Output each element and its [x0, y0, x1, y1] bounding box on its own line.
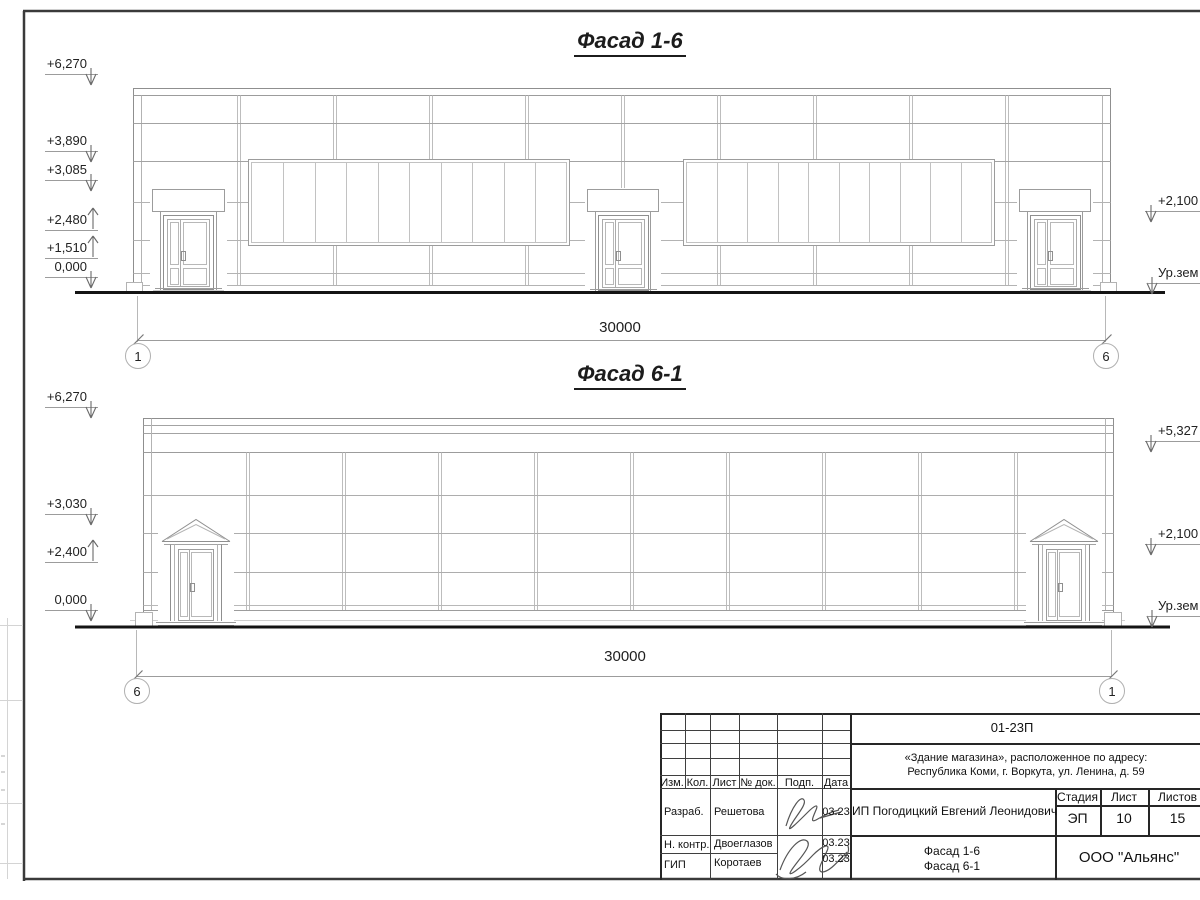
- date-razrab: 03.23: [821, 806, 851, 819]
- facade1-entrance-middle: [585, 188, 661, 292]
- company-name: ООО "Альянс": [1058, 851, 1200, 864]
- role-razrab: Разраб.: [664, 806, 704, 819]
- elevation-mark: +2,400: [19, 544, 87, 559]
- col-header-doc: № док.: [738, 777, 778, 790]
- role-gip: ГИП: [664, 859, 686, 872]
- drawing-name-line2: Фасад 6-1: [852, 860, 1052, 873]
- drawing-name-line1: Фасад 1-6: [852, 845, 1052, 858]
- elevation-mark: +3,085: [19, 162, 87, 177]
- facade1-entrance-left: [150, 188, 227, 292]
- elevation-mark: +2,480: [19, 212, 87, 227]
- project-address-line1: «Здание магазина», расположенное по адре…: [850, 752, 1200, 765]
- elevation-mark: +1,510: [19, 240, 87, 255]
- elevation-mark: +3,890: [19, 133, 87, 148]
- facade2-title: Фасад 6-1: [430, 361, 830, 390]
- client-name: ИП Погодицкий Евгений Леонидович: [852, 805, 1052, 818]
- date-nkontr: 03.23: [821, 837, 851, 850]
- elevation-mark: +2,100: [1158, 526, 1200, 541]
- col-header-list: Лист: [709, 777, 740, 790]
- elevation-mark: +3,030: [19, 496, 87, 511]
- elevation-mark: +6,270: [19, 389, 87, 404]
- axis-circle-1: 1: [1099, 678, 1125, 704]
- project-address-line2: Республика Коми, г. Воркута, ул. Ленина,…: [850, 766, 1200, 779]
- elevation-mark: 0,000: [19, 259, 87, 274]
- elevation-mark: +5,327: [1158, 423, 1200, 438]
- drawing-sheet: Фасад 1-6 Фасад 6-1 +6,270 +3,890 +3,085…: [0, 0, 1200, 900]
- stage-value: ЭП: [1056, 812, 1099, 825]
- axis-circle-6: 6: [124, 678, 150, 704]
- facade1-window-band-right: [684, 160, 995, 246]
- binding-margin: [0, 618, 23, 879]
- elevation-mark: +6,270: [19, 56, 87, 71]
- col-header-podp: Подп.: [776, 777, 823, 790]
- facade1-window-band-left: [249, 160, 570, 246]
- role-nkontr: Н. контр.: [664, 839, 709, 852]
- date-gip: 03.23: [821, 853, 851, 866]
- facade-1-6-drawing: [45, 68, 1200, 347]
- col-header-izm: Изм.: [658, 777, 686, 790]
- facade2-entrance-left: [156, 517, 236, 626]
- name-razrab: Решетова: [714, 806, 764, 819]
- facade-6-1-drawing: [45, 401, 1200, 683]
- col-header-date: Дата: [821, 777, 851, 790]
- dimension-label: 30000: [565, 648, 685, 665]
- name-nkontr: Двоеглазов: [714, 838, 772, 851]
- sheet-frame: [23, 11, 1200, 881]
- sheets-total: 15: [1149, 812, 1200, 825]
- name-gip: Коротаев: [714, 857, 762, 870]
- stage-label: Стадия: [1056, 791, 1099, 804]
- sheets-label: Листов: [1149, 791, 1200, 804]
- sheet-label: Лист: [1101, 791, 1147, 804]
- sheet-number: 10: [1101, 812, 1147, 825]
- facade2-entrance-right: [1024, 517, 1104, 626]
- document-code: 01-23П: [850, 721, 1174, 734]
- ground-level-label: Ур.зем: [1158, 598, 1200, 613]
- axis-circle-1: 1: [125, 343, 151, 369]
- axis-circle-6: 6: [1093, 343, 1119, 369]
- elevation-mark: 0,000: [19, 592, 87, 607]
- dimension-label: 30000: [560, 319, 680, 336]
- ground-level-label: Ур.зем: [1158, 265, 1200, 280]
- facade1-entrance-right: [1017, 188, 1093, 292]
- facade1-title: Фасад 1-6: [430, 28, 830, 57]
- col-header-kol: Кол.: [684, 777, 711, 790]
- elevation-mark: +2,100: [1158, 193, 1200, 208]
- drawing-linework: [0, 0, 1200, 900]
